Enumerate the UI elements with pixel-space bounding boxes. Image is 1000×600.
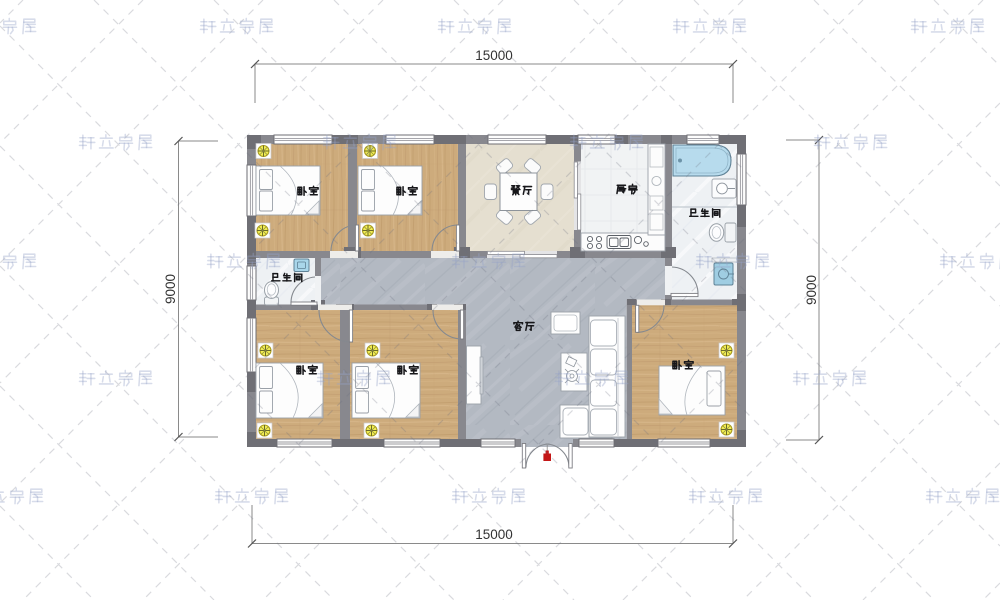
svg-text:15000: 15000 xyxy=(475,527,513,542)
svg-text:9000: 9000 xyxy=(804,275,819,305)
svg-text:9000: 9000 xyxy=(163,274,178,304)
svg-text:15000: 15000 xyxy=(475,48,513,63)
